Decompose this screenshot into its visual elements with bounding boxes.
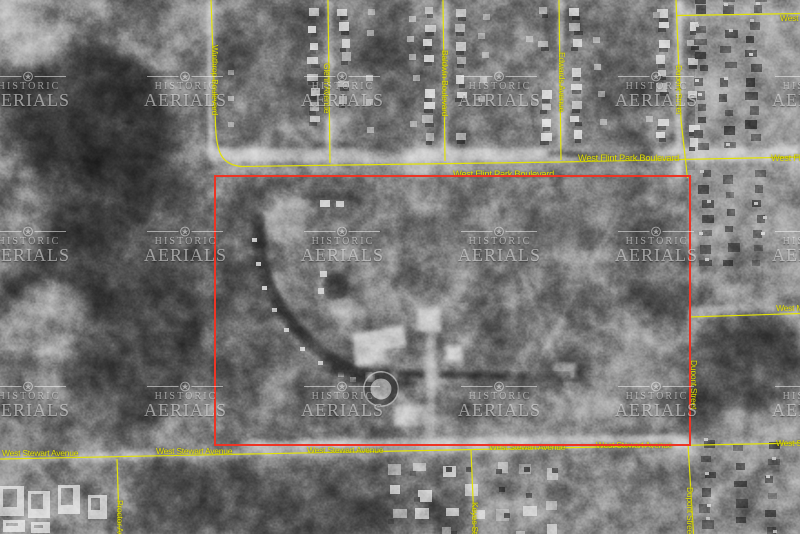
svg-text:★: ★ (338, 71, 346, 81)
svg-text:★: ★ (181, 226, 189, 236)
svg-text:★: ★ (495, 226, 503, 236)
svg-text:★: ★ (652, 226, 660, 236)
svg-text:★: ★ (652, 71, 660, 81)
svg-text:★: ★ (24, 71, 32, 81)
svg-text:★: ★ (338, 226, 346, 236)
svg-text:★: ★ (181, 71, 189, 81)
svg-text:★: ★ (24, 226, 32, 236)
svg-text:★: ★ (495, 71, 503, 81)
